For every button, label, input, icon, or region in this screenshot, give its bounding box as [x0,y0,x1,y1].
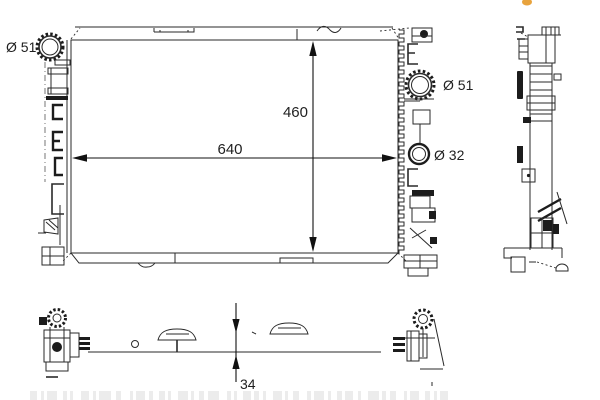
side-square-dot [522,169,535,182]
barcode-bar [390,391,396,400]
side-view [504,27,568,272]
barcode-bar [410,391,419,400]
left-clip-1 [53,105,63,119]
barcode-bar [425,391,430,400]
arrowhead-down [232,319,239,333]
bottom-right-connector [393,310,444,386]
barcode-bar [434,391,437,400]
left-fittings [37,34,70,265]
technical-drawing-canvas: 640 460 Ø 51 Ø 51 Ø 32 [0,0,600,400]
barcode [30,391,448,400]
barcode-bar [208,391,219,400]
barcode-bar [99,391,111,400]
label-inlet-right: Ø 51 [443,77,474,93]
barcode-bar [70,391,73,400]
barcode-bar [191,391,194,400]
right-fittings [404,28,437,276]
barcode-bar [199,391,204,400]
barcode-bar [81,391,89,400]
side-grid-box [531,218,559,248]
bottom-view: 34 [39,303,444,392]
right-box [413,110,430,124]
barcode-bar [263,391,266,400]
serrated-edge [399,30,404,254]
barcode-bar [41,391,44,400]
barcode-bar [159,391,165,400]
barcode-bar [404,391,407,400]
side-foot [504,248,568,272]
left-clip-2 [53,132,63,150]
bottom-tank [71,253,398,267]
dim-460: 460 [283,41,317,252]
left-bar [46,96,68,100]
barcode-bar [63,391,67,400]
top-right-bracket [412,28,432,42]
side-top-cap [538,27,561,35]
dim-640: 640 [72,141,397,162]
arrowhead-bottom [309,237,316,252]
radiator-drawing: 640 460 Ø 51 Ø 51 Ø 32 [0,0,600,400]
right-lower-assembly [410,190,437,248]
arrowhead-left [72,154,87,161]
right-clip-2 [408,169,418,186]
barcode-bar [30,391,37,400]
right-foot [404,255,437,276]
barcode-bar [116,391,121,400]
barcode-bar [285,391,288,400]
barcode-bar [337,391,342,400]
barcode-bar [47,391,57,400]
barcode-bar [328,391,331,400]
barcode-bar [136,391,145,400]
bottom-clip-right [252,323,308,334]
barcode-bar [358,391,361,400]
barcode-bar [234,391,237,400]
bottom-hole [132,341,139,348]
bottom-clip-left [158,329,196,352]
outlet-port [409,144,429,164]
arrowhead-up [232,355,239,369]
barcode-bar [227,391,231,400]
barcode-bar [440,391,448,400]
barcode-bar [293,391,299,400]
barcode-bar [314,391,324,400]
barcode-bar [368,391,379,400]
right-clip-1 [408,44,418,64]
barcode-bar [243,391,251,400]
left-lower-bracket [38,184,64,265]
barcode-bar [168,391,171,400]
inlet-port-right [404,71,434,101]
label-core-height: 460 [283,104,308,121]
barcode-bar [307,391,311,400]
barcode-bar [273,391,282,400]
top-bracket [154,28,194,32]
arrowhead-right [382,154,397,161]
barcode-bar [93,391,96,400]
barcode-bar [382,391,386,400]
side-upper-body [516,27,555,63]
left-clip-3 [55,158,63,175]
barcode-bar [130,391,133,400]
barcode-bar [254,391,259,400]
barcode-bar [149,391,153,400]
left-bracket-1 [48,68,68,94]
side-black-bar-1 [517,71,523,99]
label-core-thickness: 34 [240,376,256,392]
dim-34: 34 [232,303,255,392]
barcode-bar [345,391,353,400]
label-outlet: Ø 32 [434,147,465,163]
label-inlet-left: Ø 51 [6,39,37,55]
label-core-width: 640 [217,141,242,158]
arrowhead-top [309,41,316,56]
barcode-bar [178,391,188,400]
inlet-port-left [37,34,70,65]
bottom-left-connector [39,310,90,378]
side-black-bar-2 [517,146,523,163]
accent-dot [522,0,532,6]
